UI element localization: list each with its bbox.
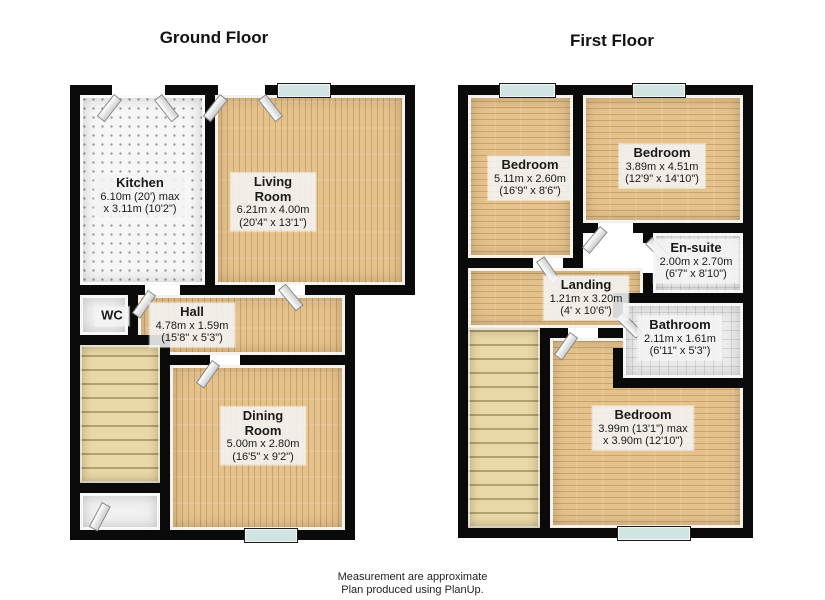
first-floor-plan: Bedroom 5.11m x 2.60m (16'9" x 8'6") Bed… [448, 78, 768, 548]
bedroom2-dim2: (12'9" x 14'10") [625, 173, 699, 186]
wall [345, 285, 355, 540]
kitchen-name: Kitchen [100, 176, 179, 191]
living-room-window [278, 84, 330, 97]
kitchen-label: Kitchen 6.10m (20') max x 3.11m (10'2") [94, 174, 185, 218]
bedroom3-label: Bedroom 3.99m (13'1") max x 3.90m (12'10… [592, 406, 693, 450]
footer-line1: Measurement are approximate [0, 571, 825, 584]
bedroom3-window [618, 527, 690, 540]
wall [265, 85, 278, 95]
wall [458, 528, 753, 538]
wall [70, 530, 355, 540]
bedroom1-label: Bedroom 5.11m x 2.60m (16'9" x 8'6") [488, 156, 572, 200]
wall [563, 258, 583, 268]
wall [328, 85, 415, 95]
bathroom-dim1: 2.11m x 1.61m [644, 333, 716, 346]
ensuite-label: En-suite 2.00m x 2.70m (6'7" x 8'10") [654, 239, 739, 283]
hall-dim2: (15'8" x 5'3") [156, 332, 229, 345]
ensuite-dim1: 2.00m x 2.70m [660, 256, 733, 269]
landing-dim1: 1.21m x 3.20m [550, 293, 623, 306]
wall [70, 483, 170, 493]
bedroom1-name: Bedroom [494, 158, 566, 173]
wall [458, 85, 468, 538]
bedroom2-name: Bedroom [625, 146, 699, 161]
bathroom-label: Bathroom 2.11m x 1.61m (6'11" x 5'3") [638, 316, 722, 360]
bedroom3-dim1: 3.99m (13'1") max [598, 423, 687, 436]
bathroom-dim2: (6'11" x 5'3") [644, 345, 716, 358]
bedroom2-label: Bedroom 3.89m x 4.51m (12'9" x 14'10") [619, 144, 705, 188]
footer-line2: Plan produced using PlanUp. [0, 584, 825, 597]
first-staircase [468, 328, 540, 528]
wall [613, 293, 753, 303]
wall [305, 285, 415, 295]
living-room-dim1: 6.21m x 4.00m [237, 204, 310, 217]
bedroom2-window [633, 84, 685, 97]
dining-room-dim1: 5.00m x 2.80m [227, 438, 300, 451]
wall [458, 258, 533, 268]
footer-disclaimer: Measurement are approximate Plan produce… [0, 571, 825, 597]
landing-name: Landing [550, 278, 623, 293]
floorplan-page: Ground Floor First Floor [0, 0, 825, 600]
bedroom1-window [500, 84, 555, 97]
wc-name: WC [101, 309, 123, 324]
dining-room-dim2: (16'5" x 9'2") [227, 451, 300, 464]
wall [405, 85, 415, 295]
wall [160, 355, 210, 365]
living-room-name: Living Room [247, 175, 299, 204]
living-room-label: Living Room 6.21m x 4.00m (20'4" x 13'1"… [231, 173, 316, 231]
kitchen-dim1: 6.10m (20') max [100, 191, 179, 204]
wall [613, 378, 753, 388]
bedroom1-dim2: (16'9" x 8'6") [494, 185, 566, 198]
bedroom2-dim1: 3.89m x 4.51m [625, 161, 699, 174]
hall-label: Hall 4.78m x 1.59m (15'8" x 5'3") [150, 303, 235, 347]
wall [743, 85, 753, 538]
wall [598, 328, 623, 338]
kitchen-dim2: x 3.11m (10'2") [100, 203, 179, 216]
ensuite-name: En-suite [660, 241, 733, 256]
dining-room-window [245, 529, 297, 542]
ground-floor-plan: Kitchen 6.10m (20') max x 3.11m (10'2") … [60, 78, 420, 556]
living-room-dim2: (20'4" x 13'1") [237, 217, 310, 230]
wall [70, 85, 80, 540]
landing-label: Landing 1.21m x 3.20m (4' x 10'6") [544, 276, 629, 320]
bathroom-name: Bathroom [644, 318, 716, 333]
wall [240, 355, 355, 365]
ensuite-dim2: (6'7" x 8'10") [660, 268, 733, 281]
ground-floor-title: Ground Floor [38, 28, 390, 48]
bedroom3-name: Bedroom [598, 408, 687, 423]
wc-label: WC [95, 307, 129, 326]
wall [540, 328, 550, 528]
landing-dim2: (4' x 10'6") [550, 305, 623, 318]
ground-staircase [80, 345, 160, 483]
wall [180, 285, 275, 295]
hall-name: Hall [156, 305, 229, 320]
wall [553, 85, 633, 95]
first-floor-title: First Floor [448, 31, 776, 51]
bedroom3-dim2: x 3.90m (12'10") [598, 435, 687, 448]
dining-room-label: Dining Room 5.00m x 2.80m (16'5" x 9'2") [221, 407, 306, 465]
dining-room-name: Dining Room [237, 409, 289, 438]
bedroom1-dim1: 5.11m x 2.60m [494, 173, 566, 186]
hall-dim1: 4.78m x 1.59m [156, 320, 229, 333]
wall [573, 85, 583, 268]
